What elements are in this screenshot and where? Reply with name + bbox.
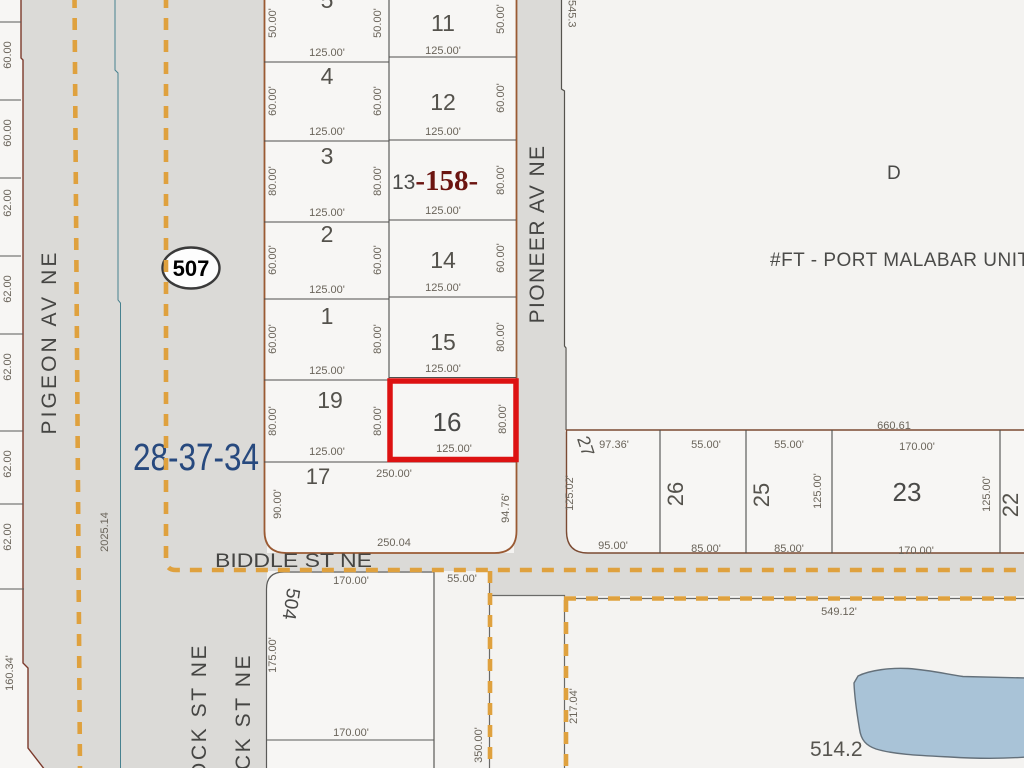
svg-text:1: 1 (321, 303, 334, 329)
svg-text:170.00': 170.00' (333, 727, 369, 739)
svg-text:125.00': 125.00' (981, 476, 993, 512)
svg-text:60.00: 60.00 (2, 41, 14, 69)
svg-text:350.00': 350.00' (473, 727, 485, 763)
svg-text:17: 17 (306, 464, 330, 489)
svg-text:125.00': 125.00' (309, 47, 345, 59)
svg-text:170.00': 170.00' (898, 545, 934, 557)
svg-text:125.00': 125.00' (425, 282, 461, 294)
svg-text:160.34': 160.34' (4, 655, 16, 691)
svg-text:50.00': 50.00' (267, 8, 279, 38)
svg-text:125.00': 125.00' (425, 126, 461, 138)
svg-text:62.00: 62.00 (2, 523, 14, 551)
svg-text:2: 2 (321, 221, 334, 247)
svg-text:14: 14 (430, 247, 456, 273)
svg-text:90.00': 90.00' (272, 489, 284, 519)
svg-text:28-37-34: 28-37-34 (133, 437, 259, 479)
svg-text:250.00': 250.00' (376, 468, 412, 480)
svg-text:80.00': 80.00' (372, 324, 384, 354)
svg-text:16: 16 (433, 407, 462, 437)
svg-text:80.00': 80.00' (495, 322, 507, 352)
svg-text:60.00': 60.00' (267, 245, 279, 275)
svg-text:25: 25 (749, 483, 774, 507)
svg-text:85.00': 85.00' (774, 543, 804, 555)
svg-text:250.04: 250.04 (377, 537, 411, 549)
svg-text:12: 12 (430, 89, 456, 115)
svg-text:2025.14: 2025.14 (99, 512, 111, 552)
svg-text:170.00': 170.00' (899, 441, 935, 453)
svg-text:19: 19 (317, 387, 343, 413)
svg-text:50.00': 50.00' (372, 8, 384, 38)
svg-text:OCK ST NE: OCK ST NE (232, 653, 255, 768)
svg-text:545.3: 545.3 (566, 0, 578, 28)
svg-text:80.00': 80.00' (495, 165, 507, 195)
svg-text:217.04': 217.04' (568, 688, 580, 724)
svg-text:55.00': 55.00' (447, 573, 477, 585)
svg-text:125.00': 125.00' (309, 365, 345, 377)
svg-text:D: D (887, 163, 901, 184)
svg-text:PIONEER AV NE: PIONEER AV NE (526, 145, 549, 324)
svg-text:23: 23 (893, 477, 922, 507)
svg-text:3: 3 (321, 143, 334, 169)
svg-text:62.00: 62.00 (2, 189, 14, 217)
svg-text:60.00': 60.00' (495, 243, 507, 273)
svg-text:80.00': 80.00' (267, 166, 279, 196)
svg-text:60.00': 60.00' (372, 86, 384, 116)
svg-text:170.00': 170.00' (333, 575, 369, 587)
svg-text:125.00': 125.00' (309, 446, 345, 458)
svg-text:125.00': 125.00' (425, 363, 461, 375)
svg-text:55.00': 55.00' (691, 439, 721, 451)
svg-text:#FT - PORT MALABAR UNIT: #FT - PORT MALABAR UNIT (770, 250, 1024, 271)
svg-text:62.00: 62.00 (2, 353, 14, 381)
svg-text:4: 4 (321, 63, 334, 89)
svg-text:94.76': 94.76' (500, 493, 512, 523)
svg-text:80.00': 80.00' (267, 406, 279, 436)
svg-text:514.2: 514.2 (810, 738, 863, 761)
svg-text:125.00': 125.00' (425, 205, 461, 217)
svg-text:175.00': 175.00' (267, 637, 279, 673)
svg-text:125.00': 125.00' (309, 284, 345, 296)
svg-text:60.00: 60.00 (2, 119, 14, 147)
svg-text:50.00': 50.00' (495, 4, 507, 34)
svg-text:80.00': 80.00' (497, 404, 509, 434)
svg-text:62.00: 62.00 (2, 275, 14, 303)
svg-text:26: 26 (663, 482, 688, 506)
svg-text:80.00': 80.00' (372, 166, 384, 196)
svg-text:OCK ST NE: OCK ST NE (188, 643, 211, 768)
svg-text:660.61: 660.61 (877, 420, 911, 432)
svg-text:55.00': 55.00' (774, 439, 804, 451)
svg-text:549.12': 549.12' (821, 606, 857, 618)
svg-text:60.00': 60.00' (372, 245, 384, 275)
svg-text:95.00': 95.00' (598, 540, 628, 552)
svg-text:15: 15 (430, 329, 456, 355)
svg-text:60.00': 60.00' (267, 86, 279, 116)
svg-text:11: 11 (431, 10, 455, 36)
svg-text:85.00': 85.00' (691, 543, 721, 555)
svg-text:62.00: 62.00 (2, 450, 14, 478)
svg-text:125.00': 125.00' (309, 207, 345, 219)
svg-text:97.36': 97.36' (599, 439, 629, 451)
svg-text:60.00': 60.00' (267, 324, 279, 354)
svg-text:80.00': 80.00' (372, 406, 384, 436)
svg-text:507: 507 (173, 256, 210, 281)
svg-text:125.00': 125.00' (812, 473, 824, 509)
svg-text:5: 5 (321, 0, 334, 13)
svg-text:125.00': 125.00' (425, 45, 461, 57)
svg-text:22: 22 (998, 493, 1023, 517)
svg-text:125.00': 125.00' (436, 443, 472, 455)
svg-text:125.00': 125.00' (309, 126, 345, 138)
svg-text:60.00': 60.00' (495, 83, 507, 113)
svg-text:PIGEON AV NE: PIGEON AV NE (38, 249, 61, 434)
svg-text:125.02': 125.02' (564, 475, 576, 511)
